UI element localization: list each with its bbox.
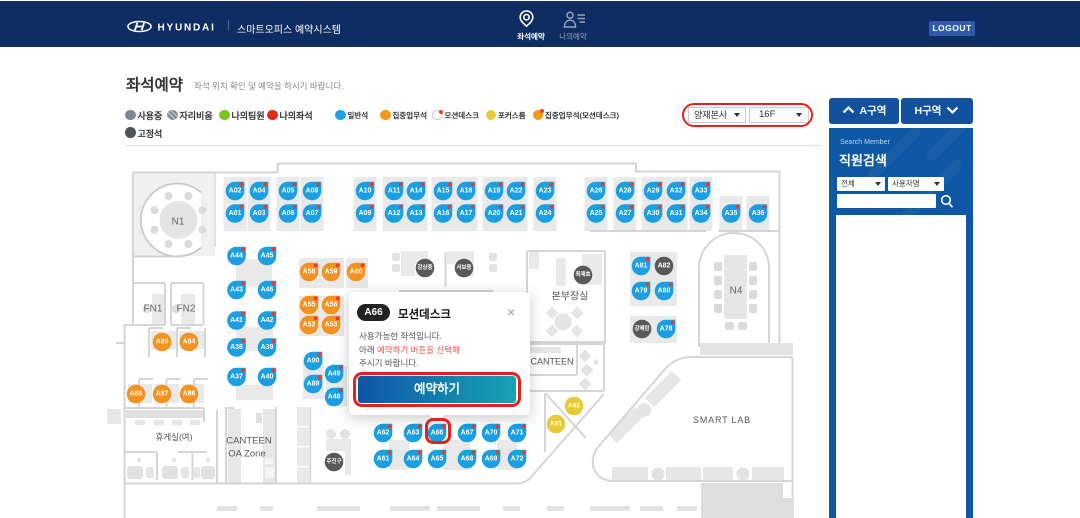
svg-text:A55: A55 [303,302,316,309]
svg-text:A23: A23 [539,188,552,195]
svg-text:A81: A81 [635,263,648,270]
svg-text:A34: A34 [695,210,708,217]
svg-text:CANTEEN: CANTEEN [530,357,573,367]
svg-text:HYUNDAI: HYUNDAI [158,22,216,33]
svg-text:OA Zone: OA Zone [228,449,266,460]
svg-text:A01: A01 [229,210,242,217]
svg-text:A05: A05 [282,188,295,195]
svg-text:A49: A49 [328,371,341,378]
svg-text:강상중: 강상중 [418,263,433,271]
svg-text:A26: A26 [590,188,603,195]
svg-text:A59: A59 [325,269,338,276]
svg-text:A43: A43 [230,287,243,294]
svg-text:A10: A10 [359,188,372,195]
svg-text:A12: A12 [388,210,401,217]
svg-text:A20: A20 [488,210,501,217]
svg-text:SMART LAB: SMART LAB [693,415,751,425]
svg-text:A58: A58 [303,269,316,276]
svg-text:A84: A84 [183,339,196,346]
svg-text:A44: A44 [230,253,243,260]
svg-text:A30: A30 [647,210,660,217]
svg-text:A09: A09 [359,210,372,217]
svg-text:A42: A42 [261,317,274,324]
svg-text:A48: A48 [328,394,341,401]
svg-text:A53: A53 [325,322,338,329]
svg-text:A15: A15 [437,188,450,195]
svg-text:A06: A06 [282,210,295,217]
svg-text:A45: A45 [261,253,274,260]
svg-text:A69: A69 [485,456,498,463]
svg-text:A22: A22 [510,188,523,195]
svg-text:A56: A56 [325,302,338,309]
svg-text:FN2: FN2 [177,304,196,315]
svg-text:A86: A86 [183,391,196,398]
svg-text:A70: A70 [485,430,498,437]
svg-text:A92: A92 [568,403,580,410]
svg-text:A03: A03 [253,210,266,217]
svg-text:N1: N1 [172,217,185,228]
svg-text:A89: A89 [307,381,320,388]
svg-text:A32: A32 [670,188,683,195]
svg-text:휴게실(여): 휴게실(여) [156,432,193,442]
svg-text:A80: A80 [658,288,671,295]
svg-text:A13: A13 [410,210,423,217]
svg-text:A64: A64 [407,456,420,463]
svg-text:A67: A67 [461,430,474,437]
svg-text:A82: A82 [658,263,671,270]
svg-text:A25: A25 [590,210,603,217]
svg-text:A35: A35 [725,210,738,217]
svg-text:A16: A16 [437,210,450,217]
svg-text:A63: A63 [407,430,420,437]
svg-text:A02: A02 [229,188,242,195]
svg-text:A33: A33 [695,188,708,195]
svg-text:A68: A68 [461,456,474,463]
svg-text:A31: A31 [670,210,683,217]
svg-text:A18: A18 [460,188,473,195]
svg-text:FN1: FN1 [144,304,163,315]
svg-text:A87: A87 [156,391,169,398]
svg-text:CANTEEN: CANTEEN [226,436,272,447]
svg-text:A61: A61 [377,456,390,463]
svg-text:A17: A17 [460,210,473,217]
svg-text:A29: A29 [647,188,660,195]
svg-text:A79: A79 [635,288,648,295]
svg-text:A28: A28 [619,188,632,195]
svg-text:A04: A04 [253,188,266,195]
svg-text:A46: A46 [261,287,274,294]
svg-text:N4: N4 [730,286,743,297]
svg-text:A65: A65 [431,456,444,463]
svg-text:A08: A08 [306,188,319,195]
svg-text:최재호: 최재호 [576,270,591,278]
svg-text:A40: A40 [261,374,274,381]
svg-text:A78: A78 [660,326,673,333]
svg-text:A91: A91 [550,421,562,428]
svg-text:서보용: 서보용 [457,263,472,271]
svg-text:강혜린: 강혜린 [635,324,650,332]
svg-text:A21: A21 [510,210,523,217]
svg-text:A71: A71 [511,430,524,437]
svg-text:A36: A36 [752,210,765,217]
svg-text:A90: A90 [307,358,320,365]
svg-text:A41: A41 [230,317,243,324]
svg-text:주진구: 주진구 [327,457,342,465]
svg-text:A85: A85 [156,339,169,346]
svg-text:A11: A11 [388,188,401,195]
svg-text:본부장실: 본부장실 [552,291,589,303]
svg-text:A72: A72 [511,456,524,463]
svg-text:A19: A19 [488,188,501,195]
svg-text:A39: A39 [261,344,274,351]
svg-text:A37: A37 [230,374,243,381]
svg-text:A60: A60 [350,269,363,276]
svg-text:A14: A14 [410,188,423,195]
svg-text:A62: A62 [377,430,390,437]
svg-text:A07: A07 [306,210,319,217]
svg-text:A52: A52 [303,322,316,329]
svg-text:A38: A38 [230,344,243,351]
svg-text:A24: A24 [539,210,552,217]
svg-text:A27: A27 [619,210,632,217]
svg-text:A88: A88 [130,391,143,398]
